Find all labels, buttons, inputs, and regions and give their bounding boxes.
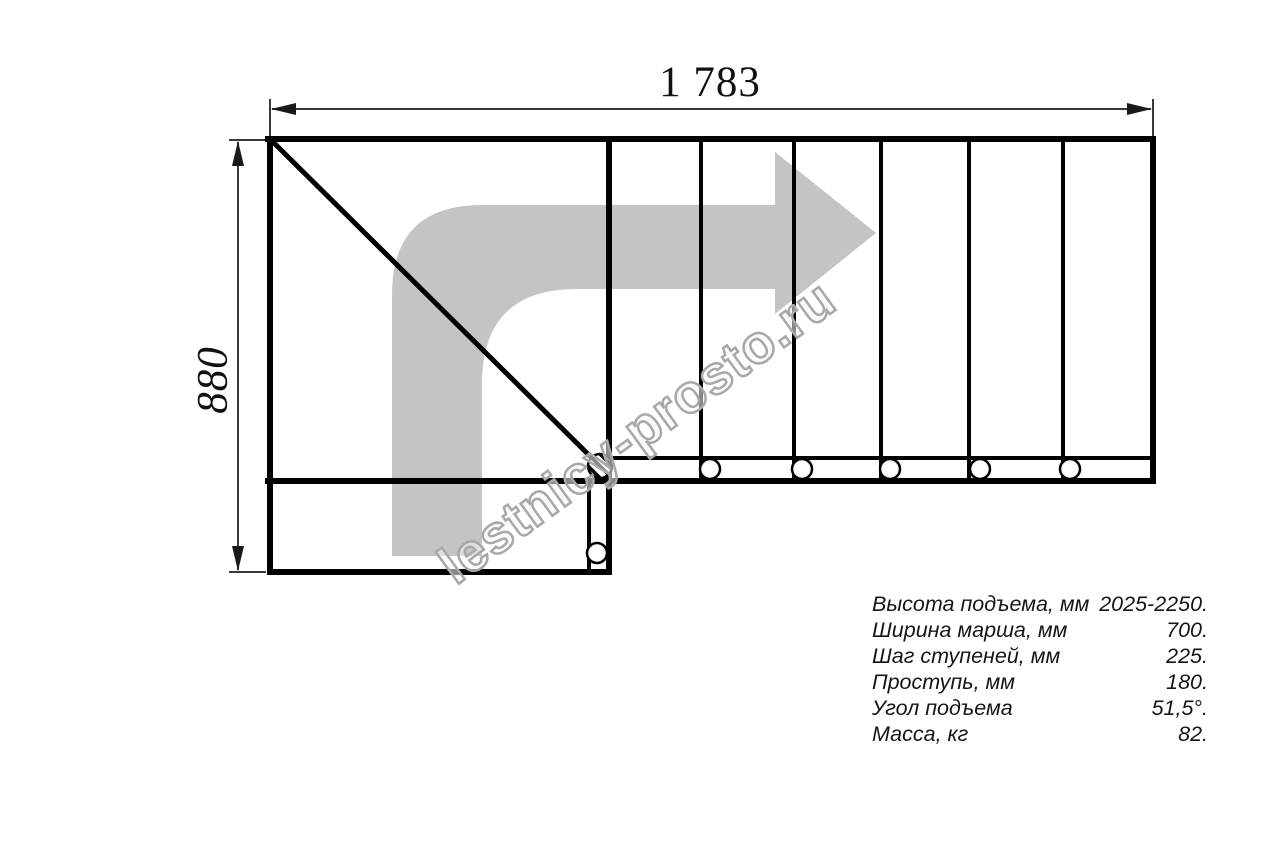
arrowhead-right-icon (1127, 103, 1152, 115)
arrowhead-left-icon (271, 103, 296, 115)
spec-value: 2025-2250. (1099, 591, 1208, 617)
baluster-circle (587, 543, 607, 563)
spec-value: 51,5°. (1152, 695, 1208, 721)
spec-value: 225. (1166, 643, 1208, 669)
spec-row: Шаг ступеней, мм 225. (872, 643, 1208, 669)
spec-value: 700. (1166, 617, 1208, 643)
spec-label: Ширина марша, мм (872, 617, 1067, 643)
spec-row: Проступь, мм 180. (872, 669, 1208, 695)
arrowhead-up-icon (232, 141, 244, 166)
spec-label: Высота подъема, мм (872, 591, 1089, 617)
direction-arrow (392, 152, 876, 556)
baluster-circle (970, 459, 990, 479)
baluster-circle (1060, 459, 1080, 479)
spec-label: Проступь, мм (872, 669, 1015, 695)
spec-label: Масса, кг (872, 721, 968, 747)
spec-label: Шаг ступеней, мм (872, 643, 1060, 669)
spec-row: Высота подъема, мм 2025-2250. (872, 591, 1208, 617)
spec-value: 82. (1178, 721, 1208, 747)
spec-row: Масса, кг 82. (872, 721, 1208, 747)
spec-row: Ширина марша, мм 700. (872, 617, 1208, 643)
spec-table: Высота подъема, мм 2025-2250. Ширина мар… (872, 591, 1208, 747)
arrowhead-down-icon (232, 546, 244, 571)
dimension-arrowheads (232, 103, 1152, 571)
height-dimension-label: 880 (189, 346, 238, 414)
baluster-circle (792, 459, 812, 479)
balusters (587, 459, 1080, 563)
baluster-circle (880, 459, 900, 479)
step-lines (589, 139, 1155, 572)
spec-label: Угол подъема (872, 695, 1013, 721)
baluster-circle (700, 459, 720, 479)
staircase-drawing-page: 1 783 880 lestnicy-prosto.ru Высота подъ… (0, 0, 1280, 853)
dimension-lines (229, 99, 1153, 572)
spec-value: 180. (1166, 669, 1208, 695)
spec-row: Угол подъема 51,5°. (872, 695, 1208, 721)
width-dimension-label: 1 783 (560, 58, 860, 107)
